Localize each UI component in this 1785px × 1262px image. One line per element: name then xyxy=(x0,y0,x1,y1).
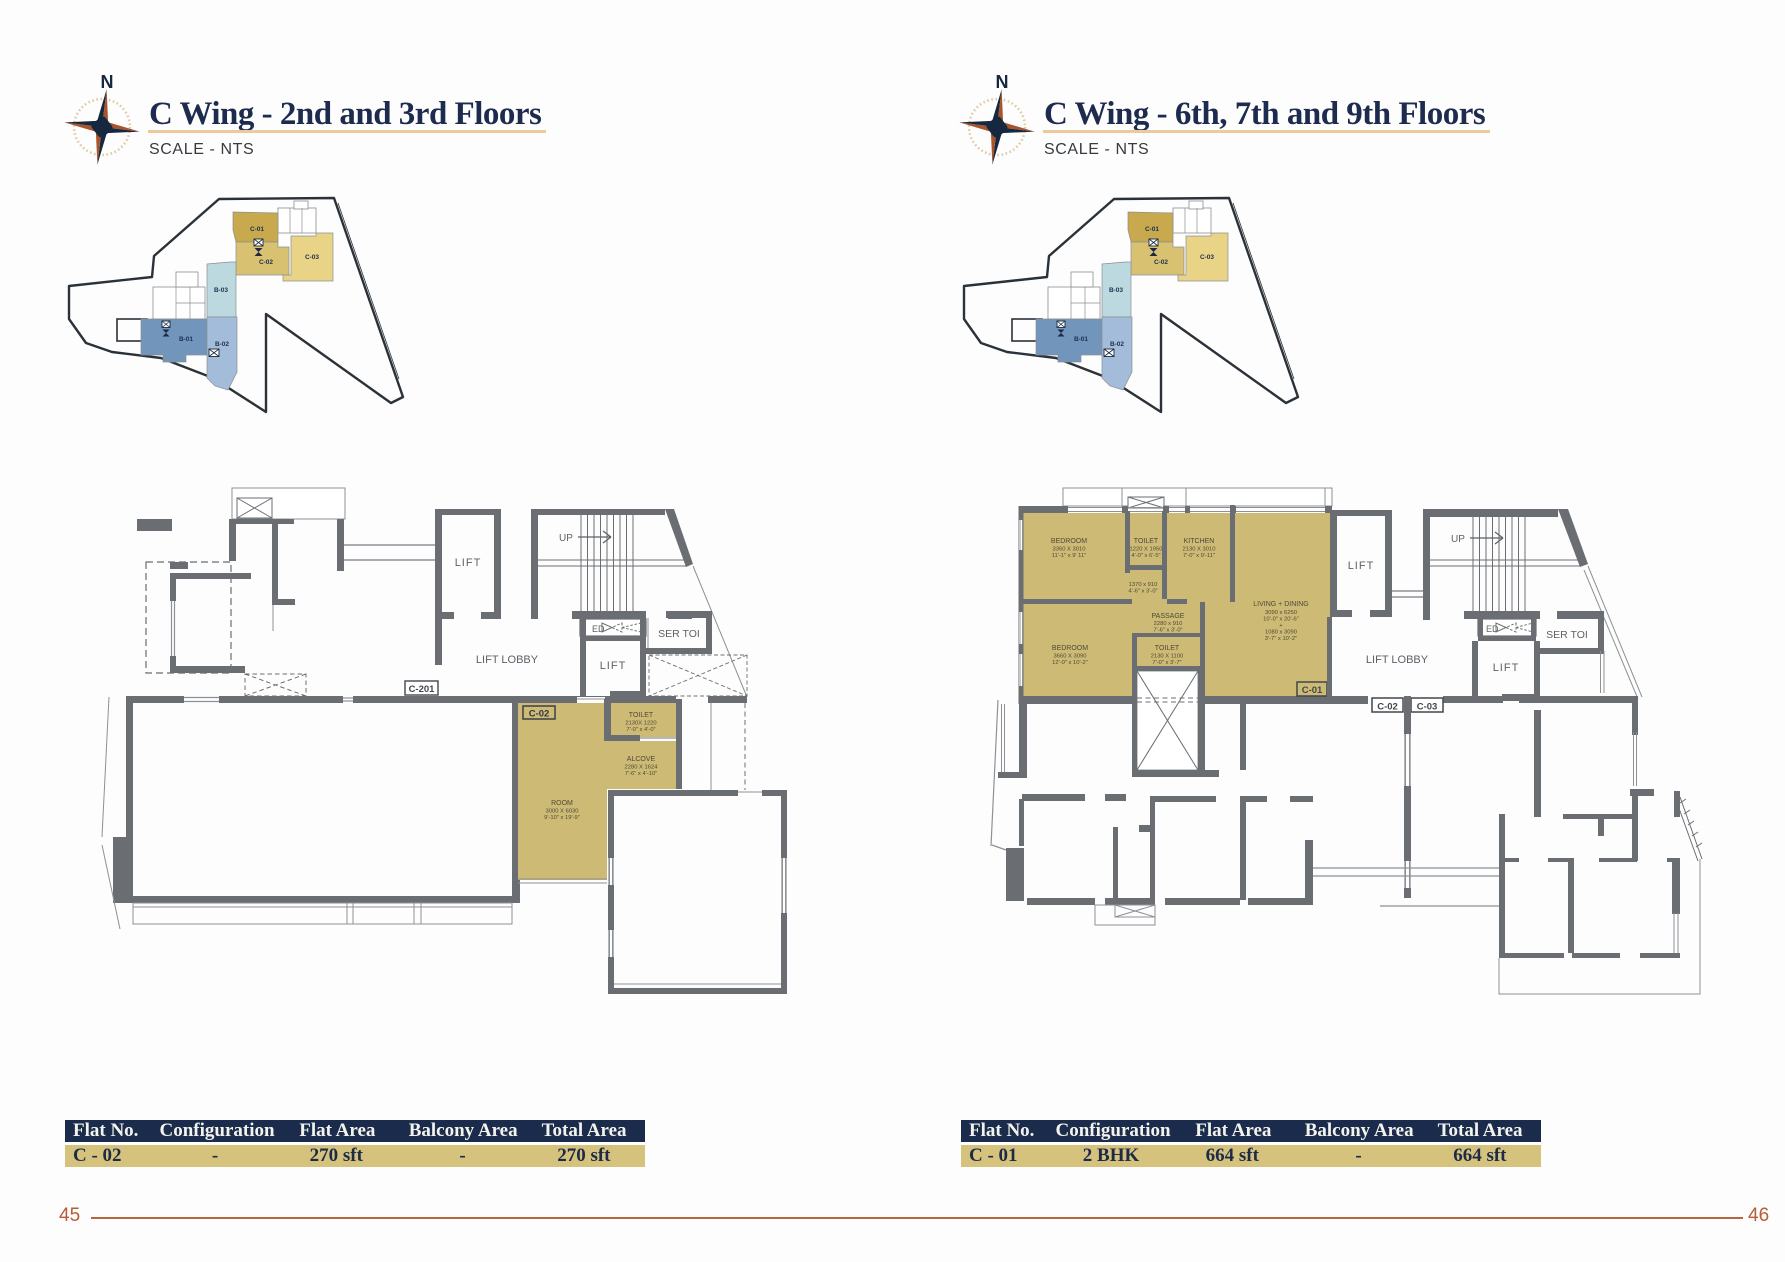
svg-text:ROOM: ROOM xyxy=(551,800,573,807)
svg-text:C-201: C-201 xyxy=(409,684,436,695)
svg-text:ED: ED xyxy=(592,624,605,634)
svg-text:12'-0" x 10'-2": 12'-0" x 10'-2" xyxy=(1052,660,1088,666)
svg-text:LIFT LOBBY: LIFT LOBBY xyxy=(1366,654,1429,666)
svg-text:C-02: C-02 xyxy=(529,709,550,720)
svg-text:BEDROOM: BEDROOM xyxy=(1051,538,1087,545)
svg-text:7'-0" x 4'-0": 7'-0" x 4'-0" xyxy=(626,727,655,733)
svg-text:10'-0" x 20'-6": 10'-0" x 20'-6" xyxy=(1263,617,1299,623)
svg-text:UP: UP xyxy=(559,533,573,544)
svg-text:PASSAGE: PASSAGE xyxy=(1152,613,1185,620)
svg-text:3000 X 6030: 3000 X 6030 xyxy=(546,809,579,815)
svg-text:1370 x 910: 1370 x 910 xyxy=(1129,582,1158,588)
svg-text:4'-0" x 6'-5": 4'-0" x 6'-5" xyxy=(1131,553,1160,559)
svg-text:C-02: C-02 xyxy=(1377,702,1398,713)
svg-text:3'-7" x 10'-2": 3'-7" x 10'-2" xyxy=(1265,636,1297,642)
svg-text:SER TOI: SER TOI xyxy=(658,628,700,640)
svg-text:LIVING + DINING: LIVING + DINING xyxy=(1253,601,1308,608)
svg-text:7'-6" x 3'-0": 7'-6" x 3'-0" xyxy=(1153,628,1182,634)
svg-text:BEDROOM: BEDROOM xyxy=(1052,645,1088,652)
svg-text:3360 X 3010: 3360 X 3010 xyxy=(1053,547,1086,553)
svg-text:UP: UP xyxy=(1451,534,1465,545)
svg-text:TOILET: TOILET xyxy=(629,712,654,719)
svg-text:ED: ED xyxy=(1486,624,1499,634)
svg-text:C-03: C-03 xyxy=(1417,702,1438,713)
svg-text:TOILET: TOILET xyxy=(1134,538,1159,545)
svg-text:1220 X 1950: 1220 X 1950 xyxy=(1130,547,1163,553)
svg-text:SER TOI: SER TOI xyxy=(1546,629,1588,641)
svg-text:LIFT: LIFT xyxy=(1493,662,1520,674)
svg-text:2280 X 1624: 2280 X 1624 xyxy=(625,765,659,771)
svg-text:KITCHEN: KITCHEN xyxy=(1184,538,1215,545)
svg-text:2130 X 3010: 2130 X 3010 xyxy=(1183,547,1216,553)
svg-text:2280 x 910: 2280 x 910 xyxy=(1154,621,1183,627)
svg-text:2130X 1220: 2130X 1220 xyxy=(625,721,656,727)
svg-text:7'-0" x 3'-7": 7'-0" x 3'-7" xyxy=(1152,660,1181,666)
svg-text:LIFT: LIFT xyxy=(600,660,627,672)
svg-text:1080 x 3090: 1080 x 3090 xyxy=(1265,630,1297,636)
svg-text:9'-10" x 19'-9": 9'-10" x 19'-9" xyxy=(544,815,580,821)
svg-text:LIFT LOBBY: LIFT LOBBY xyxy=(476,654,539,666)
svg-text:4'-6" x 3'-0": 4'-6" x 3'-0" xyxy=(1128,589,1157,595)
svg-text:LIFT: LIFT xyxy=(1348,560,1375,572)
svg-text:11'-1" x 9' 11": 11'-1" x 9' 11" xyxy=(1052,553,1086,559)
svg-text:3090 x 6250: 3090 x 6250 xyxy=(1265,610,1297,616)
svg-text:7'-6" x 4'-10": 7'-6" x 4'-10" xyxy=(625,771,657,777)
svg-text:7'-0" x 9'-11": 7'-0" x 9'-11" xyxy=(1183,553,1215,559)
svg-text:TOILET: TOILET xyxy=(1155,645,1180,652)
svg-text:LIFT: LIFT xyxy=(455,557,482,569)
svg-text:C-01: C-01 xyxy=(1302,685,1323,696)
svg-text:ALCOVE: ALCOVE xyxy=(627,756,656,763)
svg-text:3660 X 3090: 3660 X 3090 xyxy=(1054,654,1087,660)
svg-text:2130 X 1100: 2130 X 1100 xyxy=(1151,654,1183,660)
